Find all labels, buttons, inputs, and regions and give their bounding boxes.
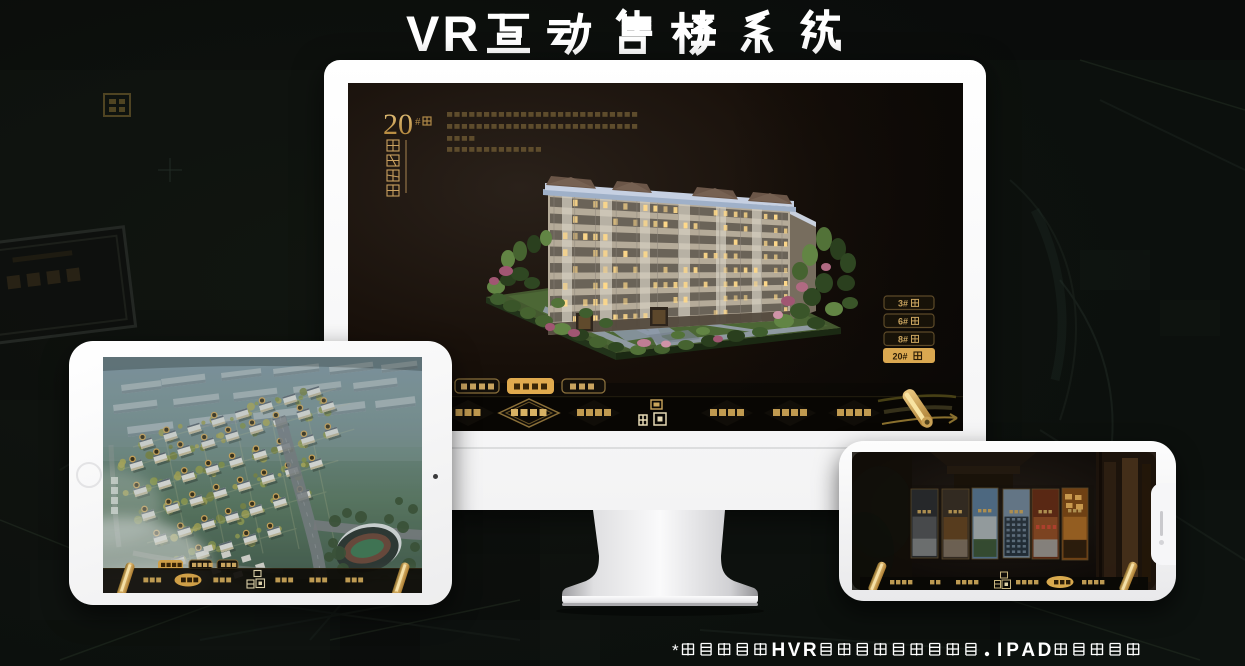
svg-text:6#: 6# bbox=[898, 317, 908, 327]
svg-text:VR: VR bbox=[406, 6, 481, 60]
svg-text:8#: 8# bbox=[898, 335, 908, 345]
svg-text:20#: 20# bbox=[892, 352, 907, 362]
svg-text:D: D bbox=[1038, 640, 1052, 661]
svg-text:V: V bbox=[788, 640, 801, 661]
svg-text:H: H bbox=[772, 640, 786, 661]
svg-text:R: R bbox=[803, 640, 817, 661]
svg-text:P: P bbox=[1006, 640, 1019, 661]
svg-text:*: * bbox=[672, 641, 679, 660]
svg-text:#: # bbox=[415, 116, 421, 128]
svg-text:3#: 3# bbox=[898, 299, 908, 309]
svg-text:20: 20 bbox=[383, 108, 413, 141]
svg-text:A: A bbox=[1021, 640, 1035, 661]
svg-text:I: I bbox=[997, 640, 1002, 661]
